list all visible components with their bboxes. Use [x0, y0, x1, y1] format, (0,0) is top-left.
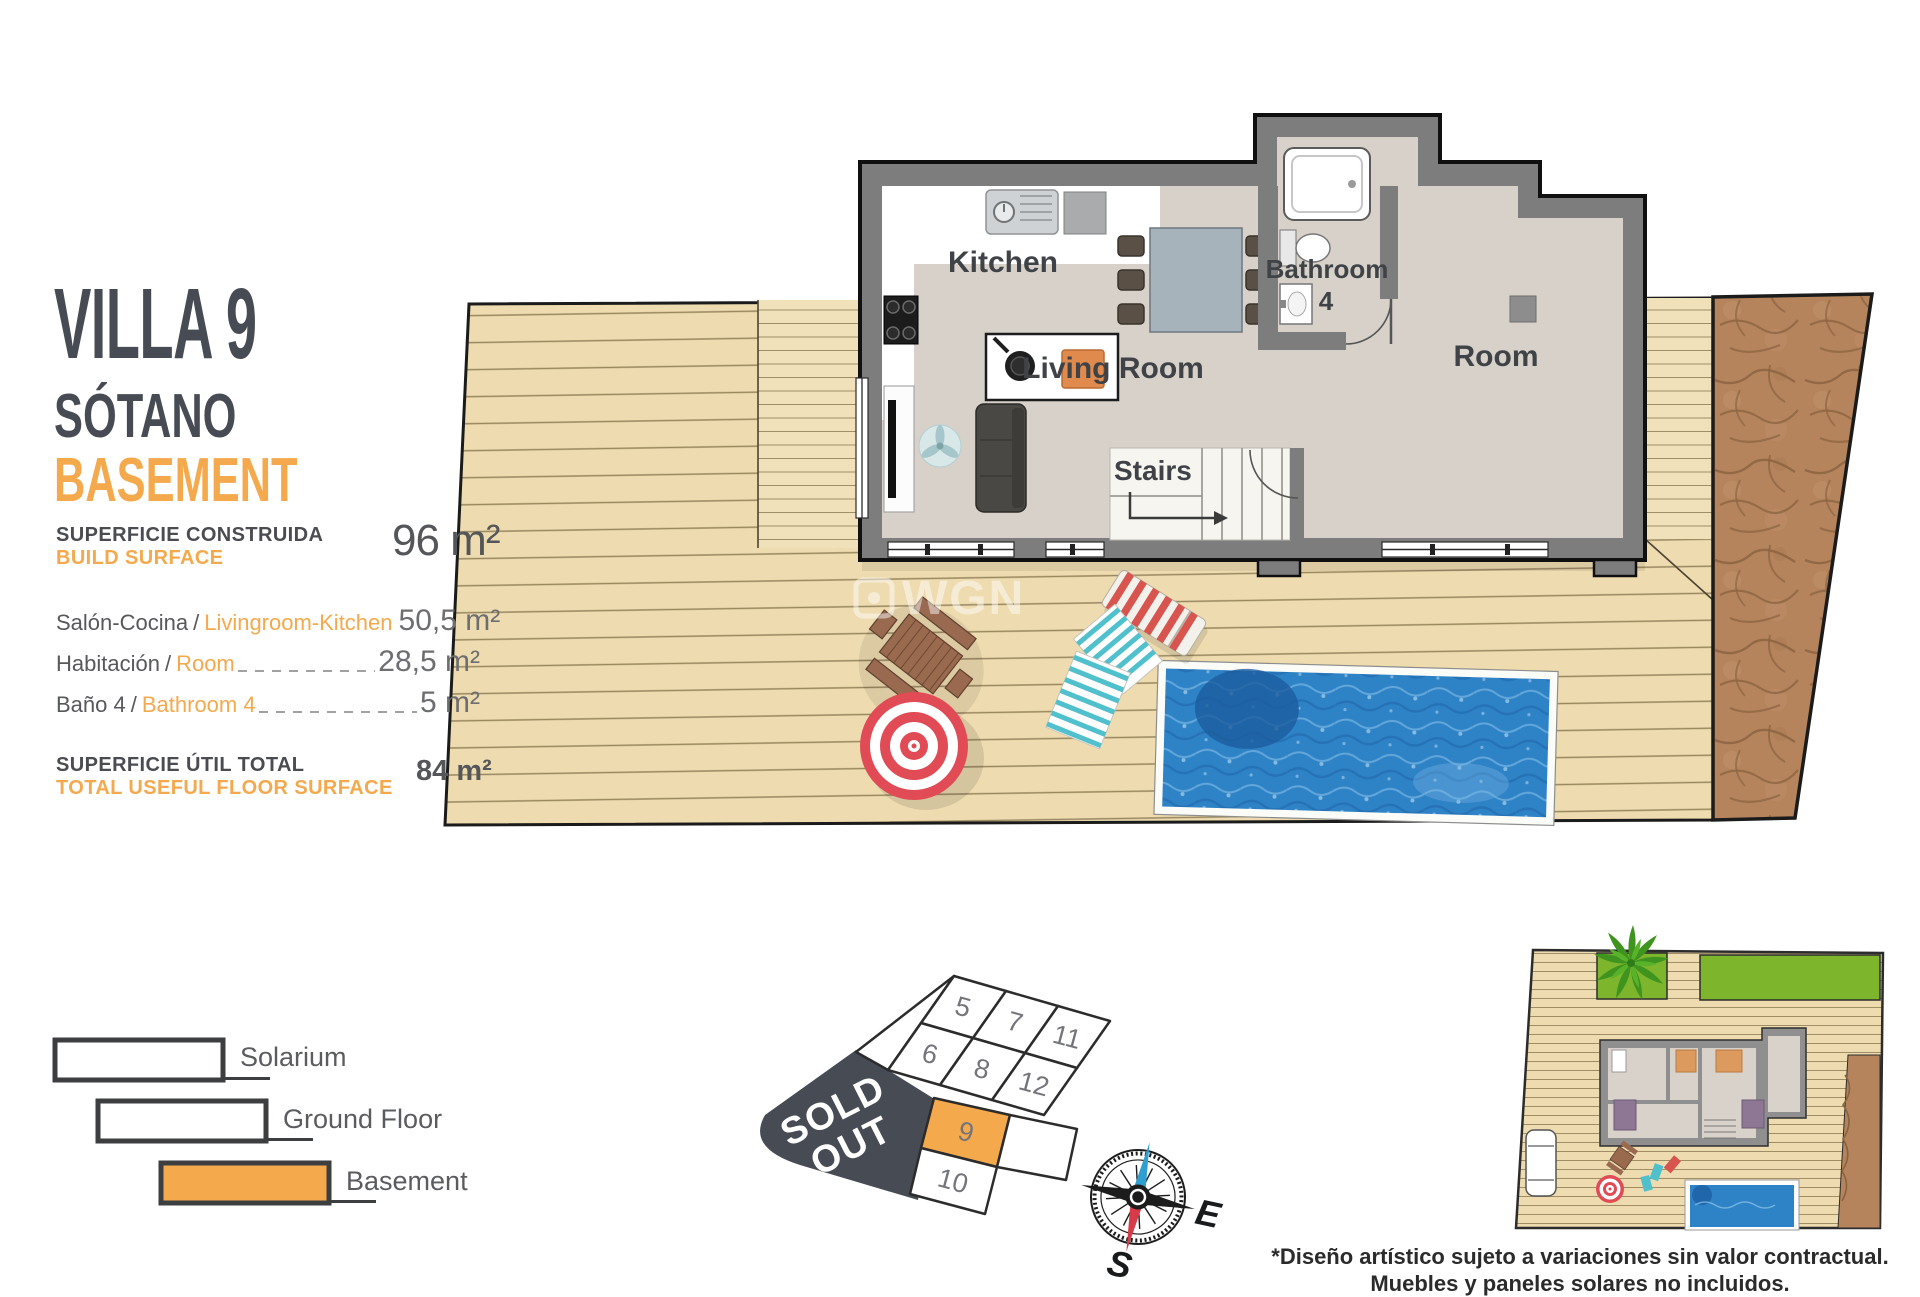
deck-narrow-strip-left — [758, 300, 860, 548]
dirt-area — [1713, 294, 1872, 820]
disclaimer-line2: Muebles y paneles solares no incluidos. — [1260, 1270, 1900, 1297]
room-name-es: Habitación — [56, 651, 160, 677]
room-area-value: 5 m² — [420, 686, 480, 720]
total-label-es: SUPERFICIE ÚTIL TOTAL — [56, 754, 393, 777]
thumb-grass-large — [1700, 955, 1880, 1000]
legend-line — [265, 1138, 313, 1141]
compass-icon: E S — [1063, 1130, 1233, 1280]
sofa — [976, 404, 1026, 512]
total-value: 84 m² — [416, 755, 492, 788]
ceiling-fan — [919, 425, 961, 467]
swimming-pool — [1154, 660, 1558, 825]
room-name-en: Room — [176, 651, 235, 677]
deck-narrow-strip-right — [1645, 298, 1713, 539]
disclaimer-line1: *Diseño artístico sujeto a variaciones s… — [1260, 1243, 1900, 1270]
thumb-umbrella — [1596, 1175, 1624, 1203]
thumb-pool — [1685, 1180, 1799, 1230]
room-name-es: Baño 4 — [56, 692, 126, 718]
dining-table — [1118, 228, 1272, 332]
legend-line — [328, 1200, 376, 1203]
room-name-en: Bathroom 4 — [142, 692, 256, 718]
room-area-value: 28,5 m² — [378, 645, 480, 679]
legend-line — [222, 1077, 270, 1080]
total-label-en: TOTAL USEFUL FLOOR SURFACE — [56, 777, 393, 800]
room-area-row: Habitación/Room 28,5 m² — [56, 645, 480, 679]
subtitle-spanish: SÓTANO — [54, 386, 236, 448]
build-surface-label-es: SUPERFICIE CONSTRUIDA — [56, 524, 323, 547]
room-areas-list: Salón-Cocina/Livingroom-Kitchen 50,5 m² … — [56, 604, 480, 727]
watermark-text: WGN — [902, 572, 1025, 625]
build-surface-value: 96 m² — [392, 516, 499, 566]
label-bathroom: Bathroom — [1266, 254, 1389, 284]
page-title: VILLA 9 — [54, 274, 256, 374]
compass-south-label: S — [1104, 1242, 1136, 1280]
plot-cell — [997, 1115, 1077, 1180]
legend-label-basement: Basement — [346, 1166, 468, 1197]
thumb-car — [1526, 1130, 1556, 1196]
build-surface-label-en: BUILD SURFACE — [56, 547, 323, 570]
label-living-room: Living Room — [1022, 352, 1204, 385]
stove — [884, 296, 918, 344]
label-stairs: Stairs — [1114, 455, 1192, 486]
building: Kitchen Living Room Bathroom 4 Room Stai… — [856, 115, 1645, 576]
kitchen-counter — [1064, 192, 1106, 234]
kitchen-sink — [986, 190, 1058, 234]
disclaimer: *Diseño artístico sujeto a variaciones s… — [1260, 1243, 1900, 1297]
legend-label-solarium: Solarium — [240, 1042, 347, 1073]
room-name-en: Livingroom-Kitchen — [204, 610, 392, 636]
bathroom-sink — [1280, 284, 1312, 324]
legend-swatch-solarium — [52, 1037, 226, 1083]
separator: / — [131, 692, 137, 718]
room-area-row: Salón-Cocina/Livingroom-Kitchen 50,5 m² — [56, 604, 480, 638]
room-name-es: Salón-Cocina — [56, 610, 188, 636]
separator: / — [165, 651, 171, 677]
dotted-leader — [238, 670, 376, 672]
compass-east-label: E — [1192, 1191, 1225, 1236]
site-plan-thumbnail — [1516, 925, 1883, 1230]
dotted-leader — [259, 711, 417, 713]
label-room: Room — [1454, 340, 1539, 373]
legend-label-ground-floor: Ground Floor — [283, 1104, 442, 1135]
plot-map: 5 7 11 6 8 12 9 10 SOLD OUT — [760, 976, 1110, 1214]
label-bathroom-number: 4 — [1319, 286, 1334, 316]
room-area-row: Baño 4/Bathroom 4 5 m² — [56, 686, 480, 720]
subtitle-english: BASEMENT — [54, 450, 298, 512]
room-pillar — [1510, 296, 1536, 322]
label-kitchen: Kitchen — [948, 246, 1058, 279]
tv-console — [884, 386, 914, 512]
separator: / — [193, 610, 199, 636]
bathtub — [1284, 148, 1370, 220]
legend-swatch-ground-floor — [95, 1098, 269, 1144]
room-area-value: 50,5 m² — [399, 604, 501, 638]
legend-swatch-basement — [158, 1160, 332, 1206]
